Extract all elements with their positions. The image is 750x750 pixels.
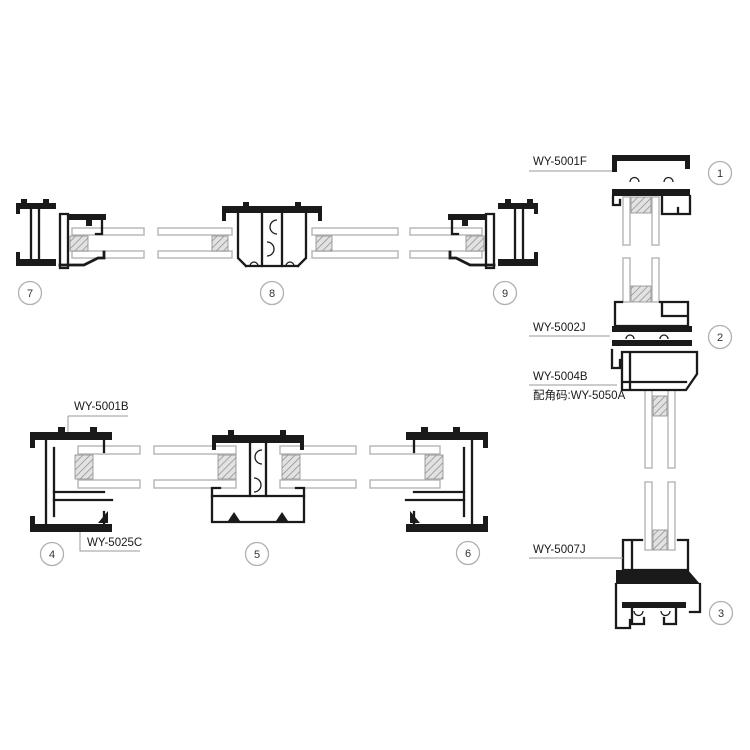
detail-3-sill-section — [616, 540, 700, 628]
balloon-8: 8 — [261, 282, 284, 305]
callout-jamb-frame-profile: WY-5001B — [74, 401, 129, 413]
callout-transom-lower-profile: WY-5004B — [533, 371, 588, 383]
profile-section-drawing-page: WY-5001F WY-5002J WY-5004B 配角码:WY-5050A … — [0, 0, 750, 750]
balloon-6-number: 6 — [465, 548, 471, 560]
balloon-9: 9 — [494, 282, 517, 305]
balloon-3-number: 3 — [718, 608, 724, 620]
balloon-1-number: 1 — [717, 168, 723, 180]
balloon-7: 7 — [19, 282, 42, 305]
balloon-4: 4 — [41, 543, 64, 566]
window-profile-sections-svg: WY-5001F WY-5002J WY-5004B 配角码:WY-5050A … — [0, 0, 750, 750]
callout-jamb-sash-profile: WY-5025C — [87, 537, 142, 549]
balloon-9-number: 9 — [502, 288, 508, 300]
balloon-4-number: 4 — [49, 549, 55, 561]
callout-corner-connector-code: 配角码:WY-5050A — [533, 389, 626, 402]
detail-2-transom-section — [612, 302, 697, 390]
callout-sill-sash-profile: WY-5007J — [533, 544, 586, 556]
balloon-7-number: 7 — [27, 288, 33, 300]
balloon-2-number: 2 — [717, 332, 723, 344]
balloon-6: 6 — [457, 542, 480, 565]
callout-transom-profile: WY-5002J — [533, 322, 586, 334]
balloon-5-number: 5 — [254, 549, 260, 561]
detail-8-mullion-section — [222, 202, 322, 266]
balloon-2: 2 — [709, 326, 732, 349]
balloon-5: 5 — [246, 543, 269, 566]
balloon-1: 1 — [709, 162, 732, 185]
callout-leader-lines — [68, 171, 623, 558]
balloon-3: 3 — [710, 602, 733, 625]
callout-head-profile: WY-5001F — [533, 156, 587, 168]
balloon-8-number: 8 — [269, 288, 275, 300]
